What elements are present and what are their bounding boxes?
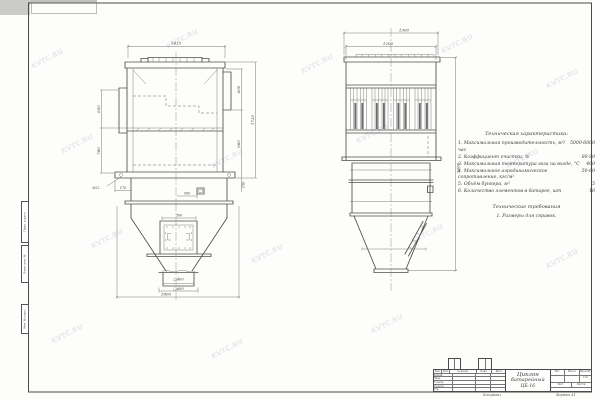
tb-header-list: Лист bbox=[442, 370, 450, 373]
title-block-meta: Лит. Масса Масштаб 1:10 Лист Листов bbox=[551, 370, 591, 391]
margin-stamp-label: Инв. № подл. bbox=[23, 309, 27, 328]
margin-stamp-sign-date: Подп. и дата bbox=[21, 201, 29, 243]
front-view-dimensions: 1415 600 780 Ø22 170 500 300 600 960 173… bbox=[92, 41, 257, 299]
notes-title: Техническая характеристика: bbox=[458, 131, 595, 139]
copied-label: Копировал bbox=[483, 393, 501, 397]
note-label: 6. Количество элементов в батарее, шт bbox=[458, 189, 585, 196]
dim-side-outer-width: 1300 bbox=[399, 28, 410, 33]
tb-scale-label: Масштаб bbox=[580, 370, 591, 375]
format-label: Формат А1 bbox=[556, 393, 576, 397]
tb-sheets-label: Листов bbox=[572, 383, 591, 388]
tb-sheet-label: Лист bbox=[551, 383, 572, 388]
note-value: 5000-6000 bbox=[568, 141, 595, 155]
note-label: 3. Максимальная температура газа на вход… bbox=[458, 162, 582, 169]
note-item: 6. Количество элементов в батарее, шт 16 bbox=[458, 189, 595, 196]
dim-front-outlet-flange: □600 bbox=[173, 287, 184, 291]
tb-mass-label: Масса bbox=[565, 370, 580, 375]
requirements-item: 1. Размеры для справок. bbox=[458, 214, 595, 221]
side-view-drawing bbox=[342, 55, 441, 273]
tb-header-doc: № докум. bbox=[450, 370, 477, 373]
tb-header-izm: Изм. bbox=[434, 370, 442, 373]
margin-stamp-inv-original: Инв. № подл. bbox=[21, 304, 29, 334]
front-view-drawing bbox=[115, 58, 235, 287]
tb-row-label: Разраб. bbox=[434, 374, 453, 377]
dim-front-base-offset: 170 bbox=[120, 186, 126, 190]
dim-front-top-width: 1415 bbox=[171, 41, 182, 46]
dim-front-bottom-width: 1800 bbox=[161, 291, 172, 296]
margin-stamp-replace-inv: Взам. инв. № bbox=[21, 245, 29, 283]
note-item: 3. Максимальная температура газа на вход… bbox=[458, 162, 595, 169]
dim-front-left-upper: 600 bbox=[96, 105, 101, 113]
tb-row-label: Н.контр. bbox=[434, 385, 453, 388]
note-label: 1. Максимальная производительность, м³/ч… bbox=[458, 141, 566, 155]
note-value: 16 bbox=[587, 189, 595, 196]
drawing-title-line3: ЦБ-16 bbox=[521, 384, 535, 389]
tb-header-date: Дата bbox=[492, 370, 505, 373]
dim-front-right-base: 150 bbox=[242, 182, 246, 188]
dim-side-inner-width: 1200 bbox=[383, 41, 394, 46]
dim-front-right-total: 1730 bbox=[250, 114, 255, 125]
note-value: 400 bbox=[584, 162, 595, 169]
note-item: 4. Максимальное аэродинамическое сопроти… bbox=[458, 169, 595, 183]
tb-header-sign: Подп. bbox=[477, 370, 492, 373]
side-view-dimensions: 1300 1200 3000 bbox=[343, 28, 461, 272]
dim-front-door-offset: 500 bbox=[184, 191, 190, 195]
note-item: 2. Коэффициент очистки, % 80-90 bbox=[458, 155, 595, 162]
dim-front-right-upper: 600 bbox=[236, 85, 241, 93]
margin-stamp-label: Взам. инв. № bbox=[23, 255, 27, 274]
tb-row-label: Пров. bbox=[434, 377, 453, 380]
title-block: Изм. Лист № докум. Подп. Дата Разраб. Пр… bbox=[433, 369, 592, 392]
dim-front-left-lower: 780 bbox=[96, 147, 101, 155]
technical-characteristics: Техническая характеристика: 1. Максималь… bbox=[458, 131, 595, 221]
title-block-riser bbox=[478, 358, 493, 370]
title-block-signatures: Изм. Лист № докум. Подп. Дата Разраб. Пр… bbox=[434, 370, 506, 391]
note-value: 80-90 bbox=[580, 155, 595, 162]
dim-front-right-mid: 960 bbox=[236, 140, 241, 148]
title-block-riser bbox=[448, 358, 462, 370]
center-lines bbox=[176, 28, 391, 300]
tb-row-label: Утв. bbox=[434, 388, 453, 391]
note-value: 50-60 bbox=[580, 169, 595, 183]
dim-front-outlet-inner: □400 bbox=[173, 277, 184, 281]
requirements-title: Технические требования bbox=[458, 204, 595, 212]
note-label: 2. Коэффициент очистки, % bbox=[458, 155, 578, 162]
tb-row-label: Т.контр. bbox=[434, 381, 453, 384]
drawing-title: Циклон батарейный ЦБ-16 bbox=[506, 370, 550, 391]
tb-scale-value: 1:10 bbox=[580, 376, 591, 382]
note-label: 4. Максимальное аэродинамическое сопроти… bbox=[458, 169, 578, 183]
dim-front-panel-width: 300 bbox=[176, 214, 182, 218]
note-item: 1. Максимальная производительность, м³/ч… bbox=[458, 141, 595, 155]
margin-stamp-label: Подп. и дата bbox=[23, 212, 27, 231]
dim-front-hole-note: Ø22 bbox=[92, 185, 100, 190]
tb-lit-label: Лит. bbox=[551, 370, 566, 375]
